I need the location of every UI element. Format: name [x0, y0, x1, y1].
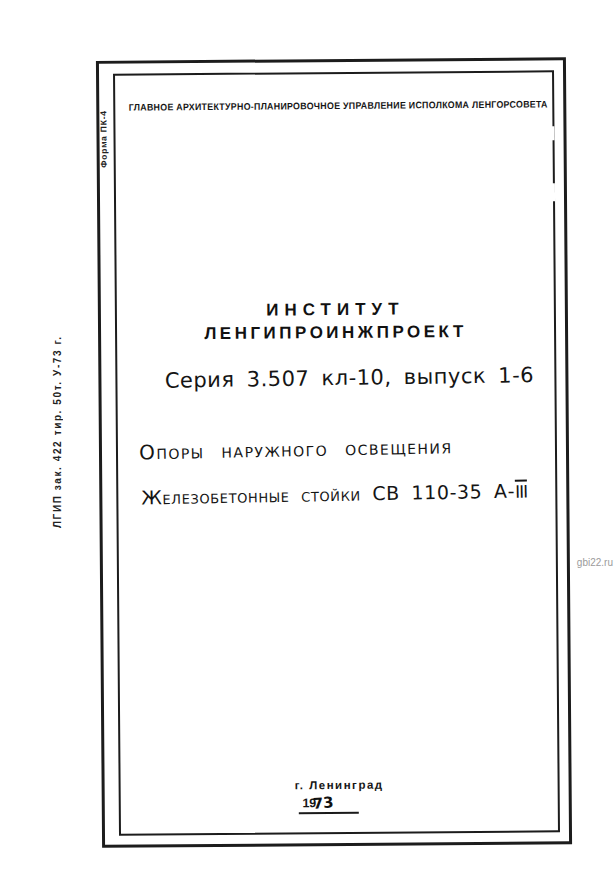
year-handwritten-digits: 73: [312, 795, 334, 812]
scan-tilt-wrapper: Форма ПК-4 ГЛАВНОЕ АРХИТЕКТУРНО-ПЛАНИРОВ…: [0, 0, 614, 877]
printing-house-code-vertical-label: ЛГИП зак. 422 тир. 50т. У-73 г.: [52, 292, 63, 528]
scanned-document-page: Форма ПК-4 ГЛАВНОЕ АРХИТЕКТУРНО-ПЛАНИРОВ…: [0, 0, 614, 877]
year-row: 1973: [119, 791, 539, 815]
institute-name-line1: ИНСТИТУТ: [115, 298, 556, 321]
scan-artifact-gap: [551, 183, 555, 201]
year-underline: 1973: [298, 794, 359, 814]
roman-numeral-overline: III: [515, 481, 527, 501]
institute-name-line2: ЛЕНГИПРОИНЖПРОЕКТ: [115, 321, 556, 344]
form-number-vertical-label: Форма ПК-4: [98, 84, 109, 168]
scan-artifact-gap: [550, 126, 554, 140]
site-watermark: gbi22.ru: [577, 557, 613, 568]
